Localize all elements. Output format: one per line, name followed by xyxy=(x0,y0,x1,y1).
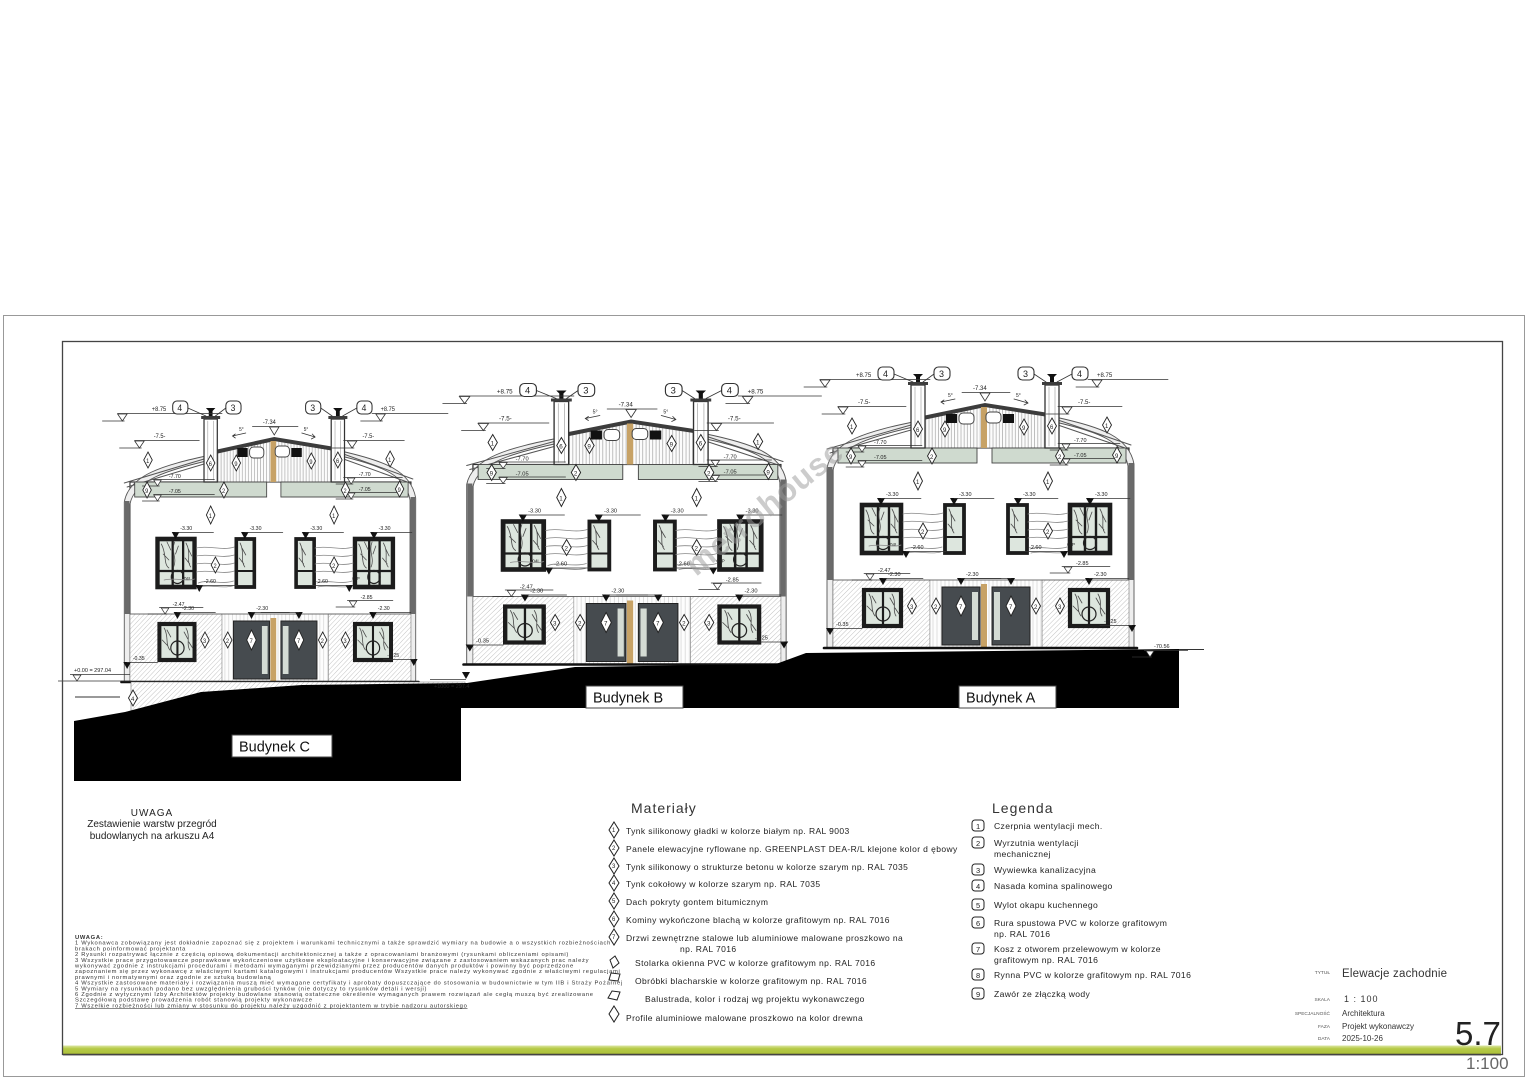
svg-text:2025-10-26: 2025-10-26 xyxy=(1342,1034,1383,1043)
svg-text:SKALA: SKALA xyxy=(1315,997,1331,1003)
svg-text:Zawór ze złączką wody: Zawór ze złączką wody xyxy=(994,989,1091,999)
svg-text:2: 2 xyxy=(976,839,980,848)
svg-text:Materiały: Materiały xyxy=(631,800,697,816)
svg-text:6: 6 xyxy=(976,919,980,928)
svg-text:5: 5 xyxy=(976,901,980,910)
svg-text:Rynna PVC w kolorze grafitowym: Rynna PVC w kolorze grafitowym np. RAL 7… xyxy=(994,970,1191,980)
svg-text:Nasada komina spalinowego: Nasada komina spalinowego xyxy=(994,881,1113,891)
svg-text:Dach pokryty gontem bitumiczny: Dach pokryty gontem bitumicznym xyxy=(626,897,768,907)
svg-text:Wylot okapu kuchennego: Wylot okapu kuchennego xyxy=(994,900,1098,910)
svg-text:1: 1 xyxy=(976,822,980,831)
svg-text:Balustrada, kolor i rodzaj wg: Balustrada, kolor i rodzaj wg projektu w… xyxy=(645,994,865,1004)
svg-text:1 : 100: 1 : 100 xyxy=(1344,994,1379,1004)
svg-text:Panele elewacyjne ryflowane np: Panele elewacyjne ryflowane np. GREENPLA… xyxy=(626,844,958,854)
svg-text:Profile aluminiowe malowane pr: Profile aluminiowe malowane proszkowo na… xyxy=(626,1013,863,1023)
svg-text:np. RAL 7016: np. RAL 7016 xyxy=(994,929,1050,939)
svg-text:Zestawienie warstw przegród: Zestawienie warstw przegród xyxy=(87,819,217,830)
svg-text:np. RAL 7016: np. RAL 7016 xyxy=(680,944,736,954)
svg-text:DATA: DATA xyxy=(1318,1036,1331,1042)
svg-text:1:100: 1:100 xyxy=(1466,1054,1509,1073)
svg-text:Budynek A: Budynek A xyxy=(966,691,1036,707)
svg-text:Rura spustowa PVC w kolorze gr: Rura spustowa PVC w kolorze grafitowym xyxy=(994,918,1167,928)
svg-text:9: 9 xyxy=(976,990,980,999)
svg-text:Tynk cokołowy w kolorze szarym: Tynk cokołowy w kolorze szarym np. RAL 7… xyxy=(626,879,821,889)
svg-text:Drzwi zewnętrzne stalowe lub a: Drzwi zewnętrzne stalowe lub aluminiowe … xyxy=(626,933,903,943)
svg-text:Budynek C: Budynek C xyxy=(239,740,310,756)
svg-text:Obróbki blacharskie w kolorze: Obróbki blacharskie w kolorze grafitowym… xyxy=(635,976,867,986)
svg-text:UWAGA: UWAGA xyxy=(131,808,173,819)
svg-text:Architektura: Architektura xyxy=(1342,1009,1385,1018)
svg-text:Legenda: Legenda xyxy=(992,800,1054,816)
svg-text:Wyrzutnia wentylacji: Wyrzutnia wentylacji xyxy=(994,838,1079,848)
svg-text:Projekt wykonawczy: Projekt wykonawczy xyxy=(1342,1022,1414,1031)
svg-text:-70.56: -70.56 xyxy=(1154,644,1170,650)
svg-text:8: 8 xyxy=(976,971,980,980)
svg-text:4: 4 xyxy=(976,882,980,891)
svg-text:+1000 = 297.4: +1000 = 297.4 xyxy=(434,684,469,690)
svg-text:Budynek B: Budynek B xyxy=(593,691,663,707)
svg-text:Kominy wykończone blachą w kol: Kominy wykończone blachą w kolorze grafi… xyxy=(626,915,890,925)
svg-text:Czerpnia wentylacji mech.: Czerpnia wentylacji mech. xyxy=(994,821,1103,831)
svg-text:grafitowym np. RAL 7016: grafitowym np. RAL 7016 xyxy=(994,955,1098,965)
svg-text:budowlanych na arkuszu A4: budowlanych na arkuszu A4 xyxy=(90,831,215,842)
svg-text:Elewacje zachodnie: Elewacje zachodnie xyxy=(1342,968,1447,980)
svg-text:Kosz z otworem przelewowym w k: Kosz z otworem przelewowym w kolorze xyxy=(994,944,1161,954)
svg-text:mechanicznej: mechanicznej xyxy=(994,849,1051,859)
svg-text:3: 3 xyxy=(976,866,980,875)
svg-text:7: 7 xyxy=(976,945,980,954)
svg-text:FAZA: FAZA xyxy=(1318,1024,1331,1030)
svg-text:7 Wszelkie rozbieżności lub zm: 7 Wszelkie rozbieżności lub zmiany w sto… xyxy=(75,1003,468,1009)
svg-text:Tynk silikonowy gładki w kolor: Tynk silikonowy gładki w kolorze białym … xyxy=(626,826,850,836)
svg-text:Wywiewka kanalizacyjna: Wywiewka kanalizacyjna xyxy=(994,865,1096,875)
svg-text:TYTUŁ: TYTUŁ xyxy=(1315,970,1331,976)
svg-text:+0.00 = 297.04: +0.00 = 297.04 xyxy=(74,668,111,674)
svg-text:Tynk silikonowy o strukturze b: Tynk silikonowy o strukturze betonu w ko… xyxy=(626,862,908,872)
svg-text:Stolarka okienna PVC w kolorze: Stolarka okienna PVC w kolorze grafitowy… xyxy=(635,958,876,968)
